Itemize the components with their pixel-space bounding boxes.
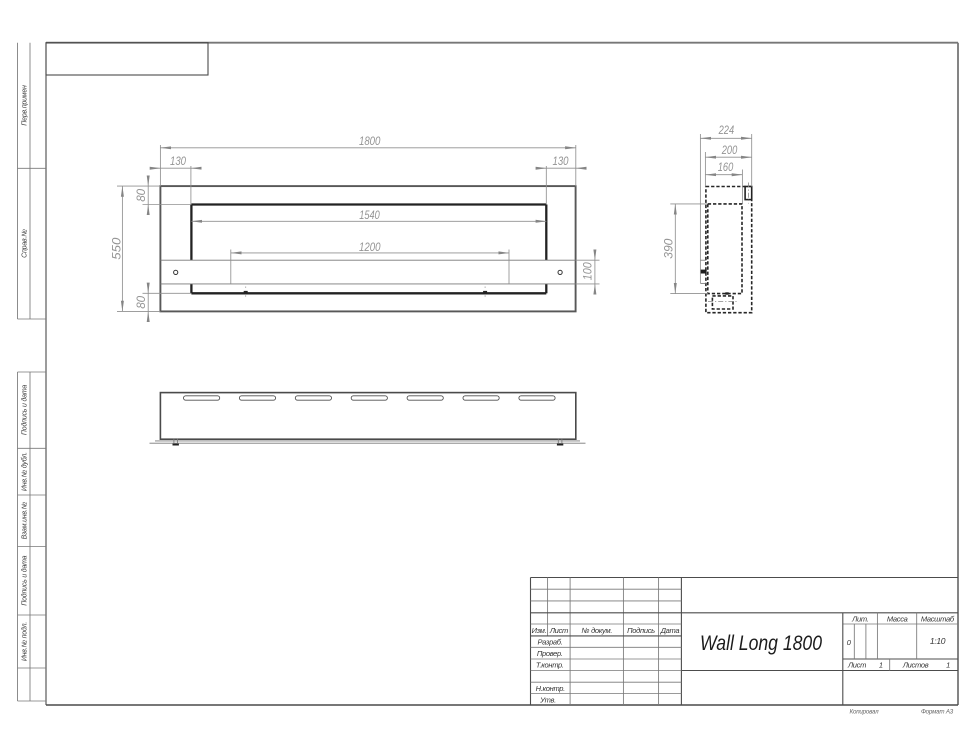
svg-text:1800: 1800 <box>359 134 381 148</box>
svg-text:Инв.№ подл.: Инв.№ подл. <box>20 622 28 662</box>
svg-text:Т.контр.: Т.контр. <box>536 661 564 670</box>
svg-text:Лист: Лист <box>847 661 866 670</box>
svg-text:Инв.№ дубл.: Инв.№ дубл. <box>20 452 28 491</box>
svg-text:Утв.: Утв. <box>539 695 556 704</box>
svg-text:390: 390 <box>662 238 676 258</box>
svg-text:224: 224 <box>718 123 735 137</box>
svg-text:Масштаб: Масштаб <box>921 615 955 624</box>
svg-text:Взам.инв.№: Взам.инв.№ <box>21 501 28 539</box>
svg-text:Лит.: Лит. <box>851 615 869 624</box>
svg-text:Н.контр.: Н.контр. <box>536 684 566 693</box>
svg-text:Перв.примен: Перв.примен <box>21 85 28 126</box>
svg-text:Дата: Дата <box>660 626 680 635</box>
svg-text:1: 1 <box>879 661 883 670</box>
svg-text:130: 130 <box>170 154 186 168</box>
svg-text:130: 130 <box>553 154 569 168</box>
svg-text:550: 550 <box>110 237 124 259</box>
svg-text:Провер.: Провер. <box>537 649 563 658</box>
svg-text:Подпись и дата: Подпись и дата <box>20 555 28 605</box>
svg-text:100: 100 <box>581 262 595 280</box>
svg-text:1: 1 <box>946 661 950 670</box>
svg-text:Копировал: Копировал <box>850 708 880 715</box>
svg-text:Разраб.: Разраб. <box>537 638 562 647</box>
svg-text:80: 80 <box>134 188 148 201</box>
svg-text:1540: 1540 <box>359 208 380 222</box>
svg-text:Лист: Лист <box>549 626 568 635</box>
svg-text:Формат А3: Формат А3 <box>921 708 954 715</box>
svg-text:Листов: Листов <box>902 661 929 670</box>
svg-text:80: 80 <box>134 295 148 308</box>
svg-text:Wall Long 1800: Wall Long 1800 <box>700 632 822 655</box>
svg-text:Справ.№: Справ.№ <box>21 229 28 258</box>
svg-text:Подпись: Подпись <box>627 626 655 635</box>
svg-text:Изм.: Изм. <box>532 626 547 635</box>
svg-text:1200: 1200 <box>359 240 381 254</box>
svg-text:160: 160 <box>718 160 734 174</box>
svg-text:Подпись и дата: Подпись и дата <box>20 385 28 435</box>
svg-text:Масса: Масса <box>887 615 908 624</box>
svg-text:1:10: 1:10 <box>930 636 946 646</box>
svg-text:200: 200 <box>721 143 738 157</box>
svg-text:№ докум.: № докум. <box>581 626 612 635</box>
